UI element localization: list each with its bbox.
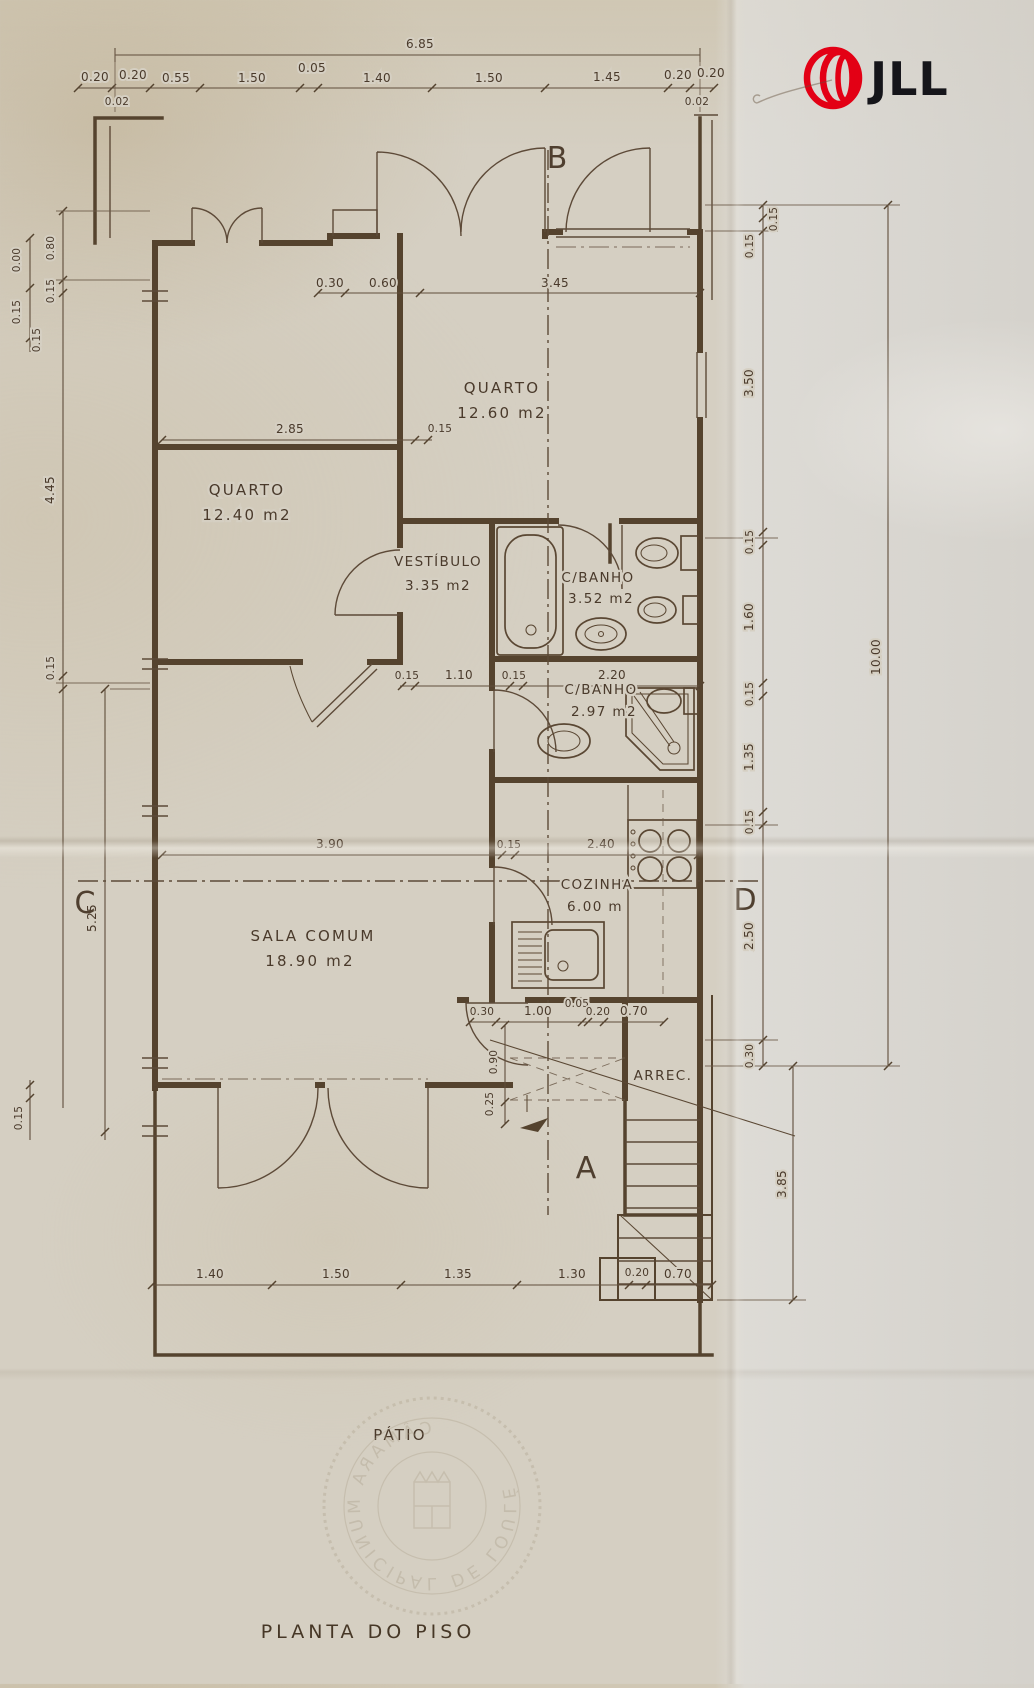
- dim-label: 1.40: [196, 1267, 224, 1281]
- dim-label: 0.90: [488, 1050, 500, 1075]
- dim-label: 0.15: [744, 234, 756, 259]
- dim-label: 0.25: [484, 1092, 496, 1117]
- kitchen-sink: [512, 922, 604, 988]
- dim-label: 0.15: [395, 670, 420, 682]
- dim-label: 0.70: [620, 1004, 648, 1018]
- dim-label: 3.45: [541, 276, 569, 290]
- dim-label: 0.15: [428, 423, 453, 435]
- dim-label: 0.70: [664, 1267, 692, 1281]
- stair-direction-arrow: [520, 1118, 548, 1132]
- dim-label: 0.30: [470, 1006, 495, 1018]
- stove: [628, 820, 697, 888]
- dim-label: 0.80: [45, 236, 57, 261]
- room-quarto1-area: 12.60 m2: [457, 404, 546, 422]
- room-sala-area: 18.90 m2: [265, 952, 354, 970]
- dim-label: 0.20: [697, 66, 725, 80]
- section-marker-a: A: [576, 1151, 597, 1186]
- dim-label: 1.50: [322, 1267, 350, 1281]
- dim-label: 0.60: [369, 276, 397, 290]
- room-sala-name: SALA COMUM: [251, 927, 376, 945]
- dim-label: 0.02: [105, 96, 130, 108]
- section-marker-d: D: [733, 883, 756, 918]
- dim-label: 0.15: [497, 839, 522, 851]
- dim-label: 0.15: [13, 1106, 25, 1131]
- dim-label: 0.20: [625, 1267, 650, 1279]
- room-banho1-name: C/BANHO: [561, 570, 634, 586]
- room-quarto2-area: 12.40 m2: [202, 506, 291, 524]
- dim-label: 1.00: [524, 1004, 552, 1018]
- dim-label: 0.55: [162, 71, 190, 85]
- dim-label: 1.50: [238, 71, 266, 85]
- dim-label: 0.00: [11, 248, 23, 273]
- dim-label: 1.40: [363, 71, 391, 85]
- dim-label: 1.30: [558, 1267, 586, 1281]
- dim-label: 0.20: [119, 68, 147, 82]
- room-vestibulo-area: 3.35 m2: [405, 578, 471, 594]
- dim-label: 0.15: [744, 682, 756, 707]
- room-vestibulo-name: VESTÍBULO: [394, 553, 482, 570]
- dim-label: 2.50: [742, 922, 756, 950]
- dim-label: 2.85: [276, 422, 304, 436]
- dim-label: 3.50: [742, 369, 756, 397]
- jll-logo-text: JLL: [867, 52, 949, 106]
- room-quarto2-name: QUARTO: [209, 481, 286, 499]
- dim-label: 0.05: [298, 61, 326, 75]
- dim-label: 1.35: [742, 743, 756, 771]
- drawing-title: PLANTA DO PISO: [261, 1621, 476, 1643]
- dim-label: 0.15: [502, 670, 527, 682]
- dim-label: 0.15: [45, 656, 57, 681]
- dim-label: 1.60: [742, 603, 756, 631]
- dim-top-total: 6.85: [406, 37, 434, 51]
- dim-right-lower: 3.85: [775, 1170, 789, 1198]
- room-quarto1-name: QUARTO: [464, 379, 541, 397]
- room-cozinha-area: 6.00 m: [567, 899, 623, 915]
- jll-logo-icon: [807, 50, 859, 106]
- dim-label: 0.20: [664, 68, 692, 82]
- doors: [192, 148, 650, 1188]
- dim-label: 1.10: [445, 668, 473, 682]
- dim-label: 0.15: [31, 328, 43, 353]
- toilet-2: [647, 688, 698, 714]
- dim-label: 0.15: [11, 300, 23, 325]
- dim-label: 3.90: [316, 837, 344, 851]
- dim-label: 4.45: [43, 476, 57, 504]
- dim-label: 2.40: [587, 837, 615, 851]
- washbasin: [576, 618, 626, 650]
- dim-label: 0.02: [685, 96, 710, 108]
- room-banho2-name: C/BANHO: [564, 682, 637, 698]
- washbasin-2: [538, 724, 590, 758]
- dim-label: 1.50: [475, 71, 503, 85]
- bathtub: [497, 527, 563, 655]
- room-banho1-area: 3.52 m2: [568, 591, 634, 607]
- dim-label: 0.30: [316, 276, 344, 290]
- embossed-stamp: CÂMARA MUNICIPAL DE LOULÉ: [324, 1398, 540, 1614]
- toilet: [636, 536, 698, 570]
- dim-label: 0.15: [744, 810, 756, 835]
- bidet: [638, 596, 698, 624]
- room-banho2-area: 2.97 m2: [571, 704, 637, 720]
- dim-label: 0.20: [81, 70, 109, 84]
- section-marker-c: C: [75, 886, 96, 921]
- dim-label: 1.45: [593, 70, 621, 84]
- section-marker-b: B: [547, 141, 568, 176]
- dim-label: 2.20: [598, 668, 626, 682]
- jll-logo: JLL: [807, 50, 949, 106]
- dim-label: 0.15: [744, 530, 756, 555]
- dimension-labels: 6.85 0.20 0.20 0.55 1.50 0.05 1.40 1.50 …: [11, 37, 883, 1281]
- floor-plan-drawing: 6.85 0.20 0.20 0.55 1.50 0.05 1.40 1.50 …: [0, 0, 1034, 1684]
- dim-label: 0.15: [45, 279, 57, 304]
- room-cozinha-name: COZINHA: [561, 877, 634, 893]
- room-arrec-name: ARREC.: [634, 1068, 693, 1084]
- dim-label: 0.30: [744, 1044, 756, 1069]
- dim-label: 0.15: [768, 207, 780, 232]
- dim-label: 0.20: [586, 1006, 611, 1018]
- dim-right-total: 10.00: [869, 639, 883, 675]
- dim-label: 1.35: [444, 1267, 472, 1281]
